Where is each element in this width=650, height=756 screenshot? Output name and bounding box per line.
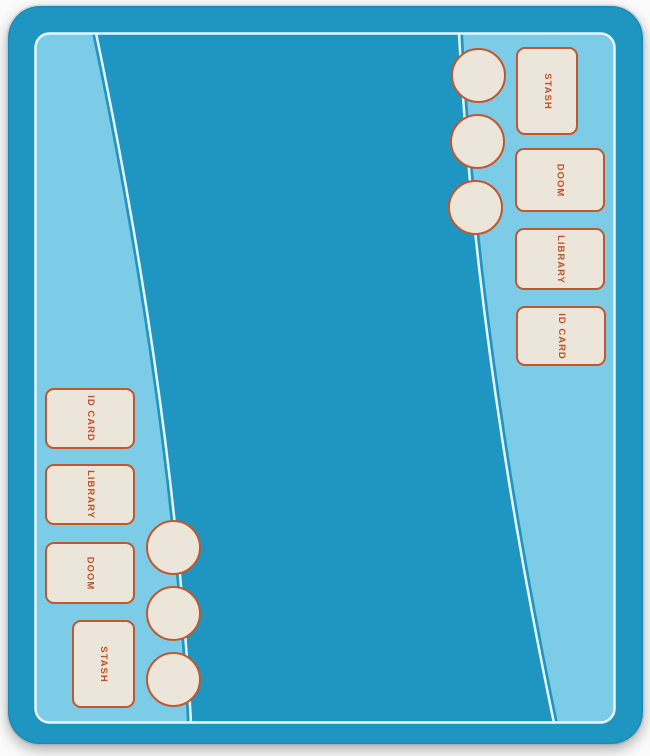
card-slot-doom-top-right[interactable]: DOOM [515, 148, 605, 212]
card-slot-idcard-bottom-left[interactable]: ID CARD [45, 388, 135, 449]
card-slot-label: DOOM [555, 163, 566, 197]
token-spot[interactable] [146, 652, 201, 707]
card-slot-stash-bottom-left[interactable]: STASH [72, 620, 135, 708]
card-slot-library-top-right[interactable]: LIBRARY [515, 228, 605, 290]
card-slot-label: STASH [542, 73, 553, 110]
token-spot[interactable] [448, 180, 503, 235]
token-spot[interactable] [146, 586, 201, 641]
card-slot-label: ID CARD [556, 313, 567, 360]
card-slot-idcard-top-right[interactable]: ID CARD [516, 306, 606, 366]
card-slot-label: DOOM [85, 556, 96, 590]
token-spot[interactable] [450, 114, 505, 169]
card-slot-label: STASH [98, 646, 109, 683]
card-slot-label: LIBRARY [85, 470, 96, 519]
card-slot-doom-bottom-left[interactable]: DOOM [45, 542, 135, 604]
token-spot[interactable] [146, 520, 201, 575]
card-slot-label: LIBRARY [555, 235, 566, 284]
card-slot-label: ID CARD [85, 395, 96, 442]
token-spot[interactable] [451, 48, 506, 103]
card-slot-library-bottom-left[interactable]: LIBRARY [45, 464, 135, 525]
card-slot-stash-top-right[interactable]: STASH [516, 47, 578, 135]
playmat: STASH DOOM LIBRARY ID CARD ID CARD LIBRA… [0, 0, 650, 756]
